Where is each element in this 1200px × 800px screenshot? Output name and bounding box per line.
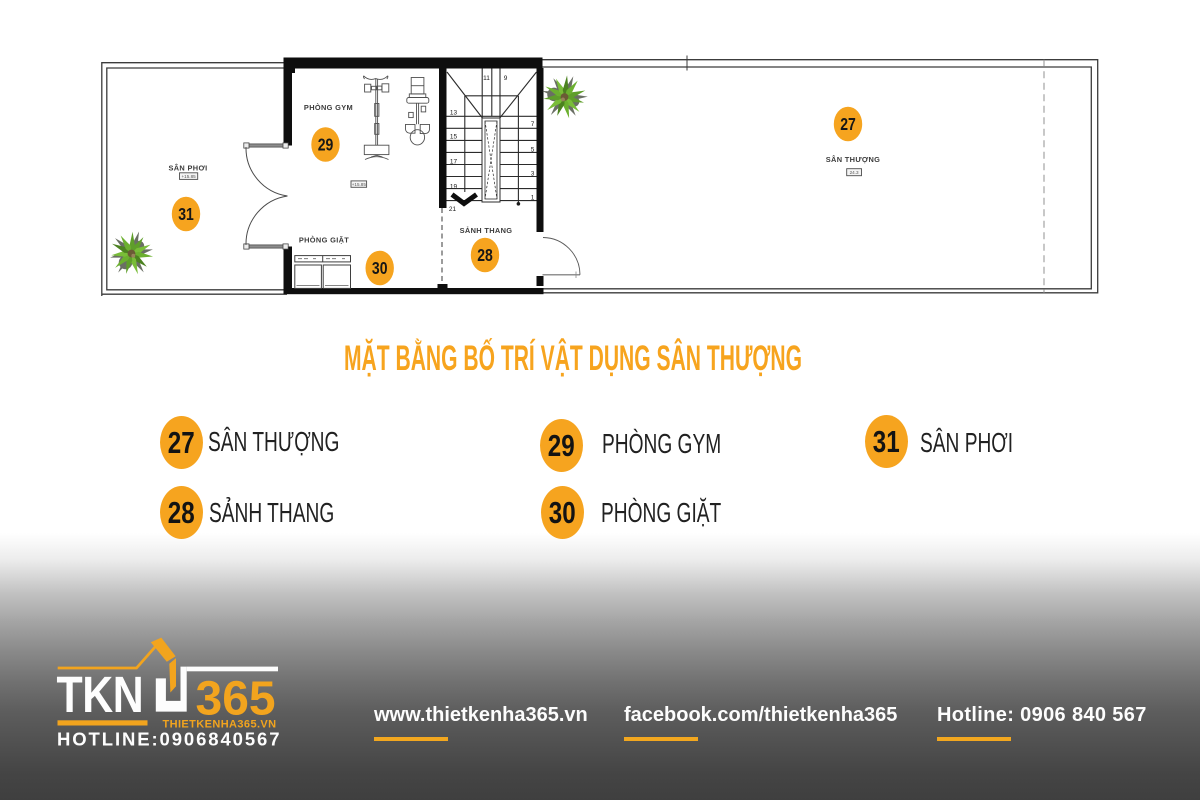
svg-text:11: 11 xyxy=(483,75,490,82)
svg-text:PHÒNG GYM: PHÒNG GYM xyxy=(304,103,353,112)
svg-text:+15.85: +15.85 xyxy=(182,174,197,179)
svg-text:365: 365 xyxy=(196,673,276,726)
svg-text:21: 21 xyxy=(449,206,457,213)
svg-text:15: 15 xyxy=(450,133,458,140)
svg-text:PHÒNG GIẶT: PHÒNG GIẶT xyxy=(299,236,349,245)
svg-text:29: 29 xyxy=(318,136,334,155)
svg-text:3: 3 xyxy=(531,171,535,178)
svg-text:17: 17 xyxy=(450,159,458,166)
svg-text:1: 1 xyxy=(531,195,535,202)
svg-text:28: 28 xyxy=(477,247,493,266)
svg-text:27: 27 xyxy=(840,116,856,135)
svg-text:HOTLINE:0906840567: HOTLINE:0906840567 xyxy=(57,728,281,749)
svg-text:24.3: 24.3 xyxy=(850,170,859,175)
svg-text:TKN: TKN xyxy=(57,665,144,722)
svg-text:SÂN PHƠI: SÂN PHƠI xyxy=(168,163,207,172)
svg-text:31: 31 xyxy=(178,206,194,225)
svg-text:9: 9 xyxy=(504,75,508,82)
svg-text:19: 19 xyxy=(450,184,458,191)
svg-text:+15.85: +15.85 xyxy=(352,182,367,187)
svg-text:5: 5 xyxy=(531,146,535,153)
svg-text:SẢNH THANG: SẢNH THANG xyxy=(460,226,513,235)
svg-text:7: 7 xyxy=(531,121,535,128)
svg-text:13: 13 xyxy=(450,109,458,116)
svg-text:30: 30 xyxy=(372,260,388,279)
svg-text:SÂN THƯỢNG: SÂN THƯỢNG xyxy=(826,155,881,164)
